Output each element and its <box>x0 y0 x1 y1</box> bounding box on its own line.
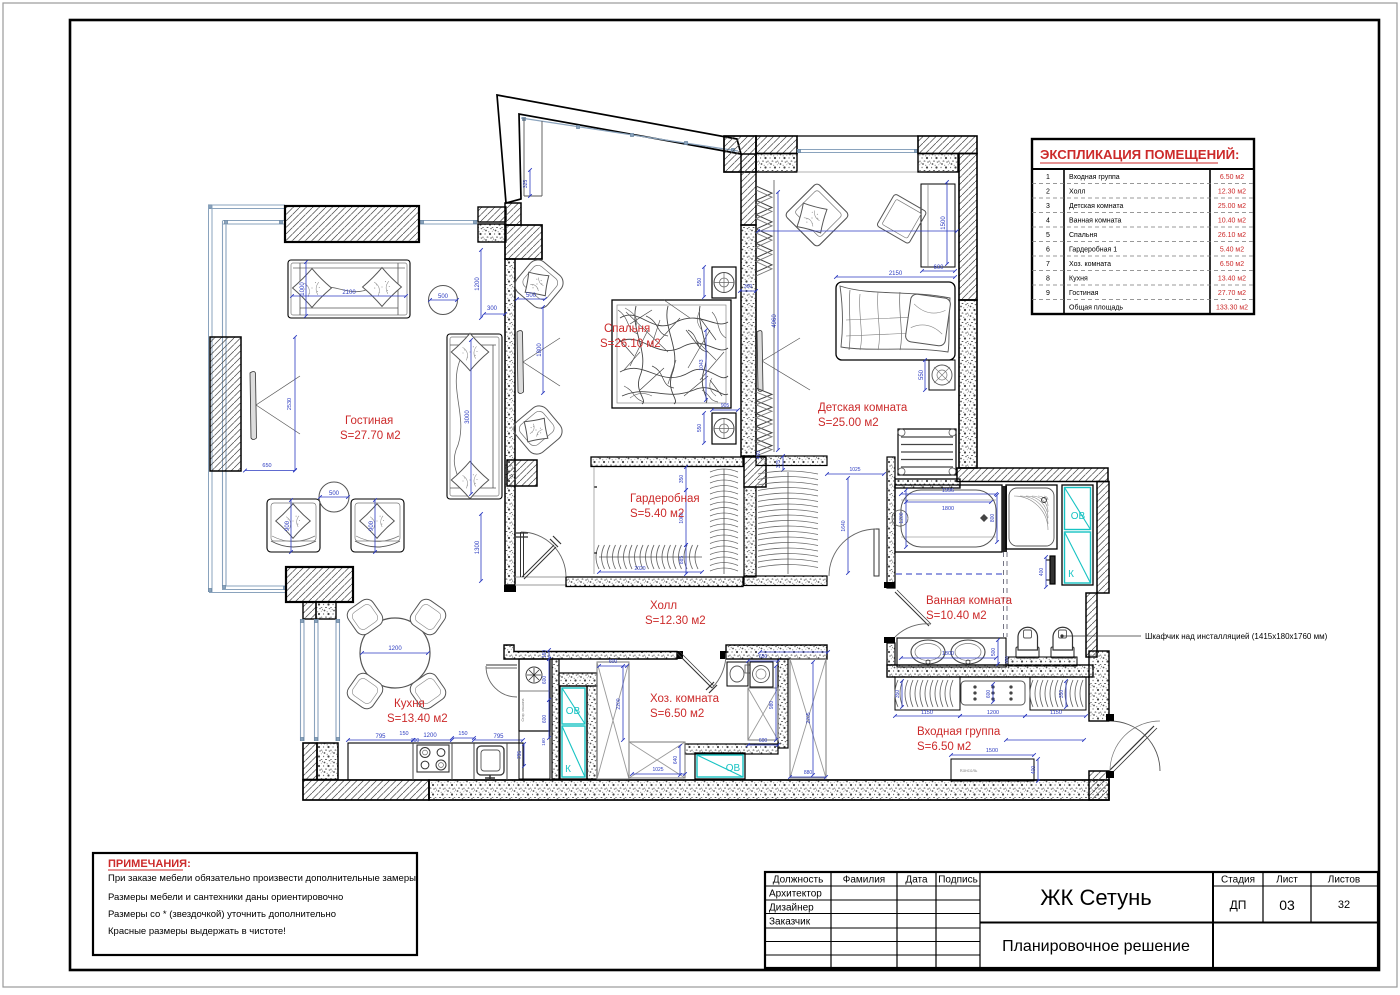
svg-text:Кухня: Кухня <box>394 698 425 710</box>
svg-text:К: К <box>565 764 571 775</box>
svg-text:Гардеробная 1: Гардеробная 1 <box>1069 246 1117 254</box>
svg-text:795: 795 <box>517 751 523 760</box>
svg-text:ЖК Сетунь: ЖК Сетунь <box>1040 885 1152 910</box>
svg-text:Входная группа: Входная группа <box>1069 174 1120 181</box>
svg-text:6.50 м2: 6.50 м2 <box>1220 261 1244 268</box>
svg-text:4: 4 <box>1046 218 1050 225</box>
svg-text:Хоз. комната: Хоз. комната <box>650 693 720 705</box>
svg-text:1025: 1025 <box>849 467 860 473</box>
svg-text:980: 980 <box>769 701 775 710</box>
svg-text:ЭКСПЛИКАЦИЯ ПОМЕЩЕНИЙ:: ЭКСПЛИКАЦИЯ ПОМЕЩЕНИЙ: <box>1040 147 1239 162</box>
svg-text:1500: 1500 <box>986 748 998 754</box>
svg-text:Ванная комната: Ванная комната <box>926 595 1013 607</box>
svg-text:32: 32 <box>1338 899 1350 911</box>
svg-text:S=13.40 м2: S=13.40 м2 <box>387 713 448 725</box>
svg-text:Кухня: Кухня <box>1069 276 1088 283</box>
svg-text:375: 375 <box>776 460 782 469</box>
svg-text:500: 500 <box>438 294 449 300</box>
svg-text:2020: 2020 <box>634 566 645 572</box>
svg-text:400: 400 <box>1039 568 1045 577</box>
svg-text:Гостиная: Гостиная <box>1069 290 1099 297</box>
svg-text:Размеры мебели и сантехники да: Размеры мебели и сантехники даны ориенти… <box>108 892 343 903</box>
svg-text:Входная группа: Входная группа <box>917 726 1001 738</box>
svg-text:S=27.70 м2: S=27.70 м2 <box>340 430 401 442</box>
svg-text:905: 905 <box>721 403 730 409</box>
svg-text:640: 640 <box>673 756 679 765</box>
svg-text:4960: 4960 <box>772 314 778 328</box>
svg-text:27.70 м2: 27.70 м2 <box>1218 290 1246 297</box>
svg-text:6.50 м2: 6.50 м2 <box>1220 174 1244 181</box>
svg-text:1150: 1150 <box>1050 710 1062 716</box>
svg-text:880: 880 <box>804 770 813 776</box>
svg-text:Детская комната: Детская комната <box>1069 203 1123 210</box>
svg-text:550: 550 <box>919 369 925 380</box>
svg-text:Спальня: Спальня <box>1069 232 1097 239</box>
svg-text:350: 350 <box>895 690 901 699</box>
svg-text:795: 795 <box>375 734 386 740</box>
svg-text:При заказе мебели обязательно: При заказе мебели обязательно произвести… <box>108 873 416 884</box>
svg-text:500: 500 <box>991 648 997 657</box>
svg-text:S=6.50 м2: S=6.50 м2 <box>917 741 971 753</box>
svg-text:650: 650 <box>262 463 271 469</box>
svg-text:325: 325 <box>523 180 529 189</box>
svg-text:S=6.50 м2: S=6.50 м2 <box>650 708 704 720</box>
svg-text:400: 400 <box>1031 766 1037 775</box>
svg-text:1800: 1800 <box>942 506 954 512</box>
svg-text:Дизайнер: Дизайнер <box>769 903 814 914</box>
svg-text:Фамилия: Фамилия <box>843 875 885 886</box>
svg-text:Шкафчик над инсталляцией (1415: Шкафчик над инсталляцией (1415х180х1760 … <box>1145 632 1328 641</box>
svg-text:1200: 1200 <box>987 710 999 716</box>
svg-text:03: 03 <box>1279 897 1295 913</box>
svg-text:1150: 1150 <box>921 710 933 716</box>
svg-text:300: 300 <box>487 306 498 312</box>
svg-text:650: 650 <box>759 654 768 660</box>
svg-text:ОВ: ОВ <box>1071 511 1086 522</box>
svg-text:500: 500 <box>526 293 537 299</box>
svg-text:Общая площадь: Общая площадь <box>1069 304 1123 312</box>
svg-text:1800: 1800 <box>537 343 543 357</box>
svg-text:1300: 1300 <box>475 540 481 554</box>
svg-text:5.40 м2: 5.40 м2 <box>1220 247 1244 254</box>
svg-text:1200: 1200 <box>423 733 437 739</box>
svg-text:Размеры со * (звездочкой) уточ: Размеры со * (звездочкой) уточнить допол… <box>108 909 336 920</box>
svg-text:Дата: Дата <box>905 875 928 886</box>
svg-text:150: 150 <box>399 731 408 737</box>
svg-text:150: 150 <box>458 731 467 737</box>
svg-text:8: 8 <box>1046 276 1050 283</box>
svg-text:Стадия: Стадия <box>1221 875 1255 886</box>
svg-text:Должность: Должность <box>773 875 824 886</box>
svg-text:ОВ: ОВ <box>566 706 581 717</box>
svg-text:2150: 2150 <box>889 271 903 277</box>
svg-text:1200: 1200 <box>388 646 402 652</box>
svg-text:133.30 м2: 133.30 м2 <box>1216 305 1248 312</box>
svg-text:25.00 м2: 25.00 м2 <box>1218 203 1246 210</box>
svg-text:795: 795 <box>493 734 504 740</box>
svg-text:1800: 1800 <box>942 651 954 657</box>
svg-text:350: 350 <box>1004 656 1009 664</box>
svg-text:885: 885 <box>679 556 685 565</box>
svg-text:300: 300 <box>744 284 753 290</box>
svg-text:1640: 1640 <box>841 520 847 531</box>
svg-text:2200: 2200 <box>616 698 622 709</box>
svg-text:800: 800 <box>990 514 996 523</box>
svg-text:ОВ: ОВ <box>726 763 741 774</box>
svg-text:1: 1 <box>1046 174 1050 181</box>
svg-text:600: 600 <box>759 738 768 744</box>
svg-text:S=26.10 м2: S=26.10 м2 <box>600 338 661 350</box>
svg-text:600: 600 <box>542 676 548 685</box>
svg-text:1996: 1996 <box>942 488 954 494</box>
svg-text:2: 2 <box>1046 189 1050 196</box>
svg-text:К: К <box>1068 569 1074 580</box>
svg-text:300: 300 <box>411 738 420 744</box>
svg-text:13.40 м2: 13.40 м2 <box>1218 276 1246 283</box>
svg-text:Хоз. комната: Хоз. комната <box>1069 261 1111 268</box>
svg-text:ДП: ДП <box>1230 898 1247 912</box>
svg-text:550: 550 <box>697 278 703 287</box>
svg-text:350: 350 <box>1059 690 1065 699</box>
svg-text:160: 160 <box>541 738 546 746</box>
svg-text:5: 5 <box>1046 232 1050 239</box>
svg-text:Архитектор: Архитектор <box>769 889 822 900</box>
svg-text:S=25.00 м2: S=25.00 м2 <box>818 417 879 429</box>
svg-text:Красные размеры выдержать в чи: Красные размеры выдержать в чистоте! <box>108 926 286 937</box>
svg-text:S=5.40 м2: S=5.40 м2 <box>630 508 684 520</box>
svg-text:Лист: Лист <box>1276 875 1298 886</box>
svg-text:Заказчик: Заказчик <box>769 917 811 928</box>
svg-text:350: 350 <box>679 475 685 484</box>
svg-text:1000: 1000 <box>300 282 306 296</box>
svg-text:2205: 2205 <box>806 712 812 723</box>
svg-text:Консоль: Консоль <box>960 768 978 773</box>
svg-text:Листов: Листов <box>1328 875 1361 886</box>
svg-text:Стир. машина: Стир. машина <box>521 698 525 721</box>
svg-text:600: 600 <box>609 659 618 665</box>
svg-text:12.30 м2: 12.30 м2 <box>1218 189 1246 196</box>
svg-text:1025: 1025 <box>652 767 663 773</box>
svg-text:S=12.30 м2: S=12.30 м2 <box>645 615 706 627</box>
svg-text:26.10 м2: 26.10 м2 <box>1218 232 1246 239</box>
svg-text:1200: 1200 <box>899 512 905 523</box>
svg-text:900: 900 <box>285 520 291 531</box>
svg-text:1043: 1043 <box>699 359 705 370</box>
svg-text:Спальня: Спальня <box>604 323 650 335</box>
svg-text:9: 9 <box>1046 290 1050 297</box>
svg-text:600: 600 <box>542 715 548 724</box>
svg-text:600: 600 <box>933 265 944 271</box>
svg-text:600: 600 <box>986 690 992 699</box>
svg-text:460: 460 <box>756 451 762 460</box>
svg-text:ПРИМЕЧАНИЯ:: ПРИМЕЧАНИЯ: <box>108 858 191 870</box>
svg-text:6: 6 <box>1046 247 1050 254</box>
svg-text:3000: 3000 <box>465 410 471 424</box>
svg-text:Гардеробная: Гардеробная <box>630 493 700 505</box>
svg-text:1500: 1500 <box>941 216 947 230</box>
svg-text:2530: 2530 <box>287 398 293 410</box>
svg-text:Гостиная: Гостиная <box>345 415 393 427</box>
svg-text:S=10.40 м2: S=10.40 м2 <box>926 610 987 622</box>
svg-text:10.40 м2: 10.40 м2 <box>1218 218 1246 225</box>
svg-text:3: 3 <box>1046 203 1050 210</box>
svg-text:2100: 2100 <box>342 290 356 296</box>
svg-text:900: 900 <box>369 520 375 531</box>
svg-text:Холл: Холл <box>1069 189 1086 196</box>
svg-text:Планировочное решение: Планировочное решение <box>1002 938 1190 955</box>
svg-text:Подпись: Подпись <box>938 875 978 886</box>
svg-text:Ванная комната: Ванная комната <box>1069 218 1122 225</box>
svg-text:Холл: Холл <box>650 600 677 612</box>
svg-text:1200: 1200 <box>475 277 481 291</box>
svg-text:Детская комната: Детская комната <box>818 402 908 414</box>
svg-text:7: 7 <box>1046 261 1050 268</box>
svg-text:500: 500 <box>329 491 340 497</box>
svg-text:550: 550 <box>697 424 703 433</box>
svg-text:150: 150 <box>542 650 548 659</box>
